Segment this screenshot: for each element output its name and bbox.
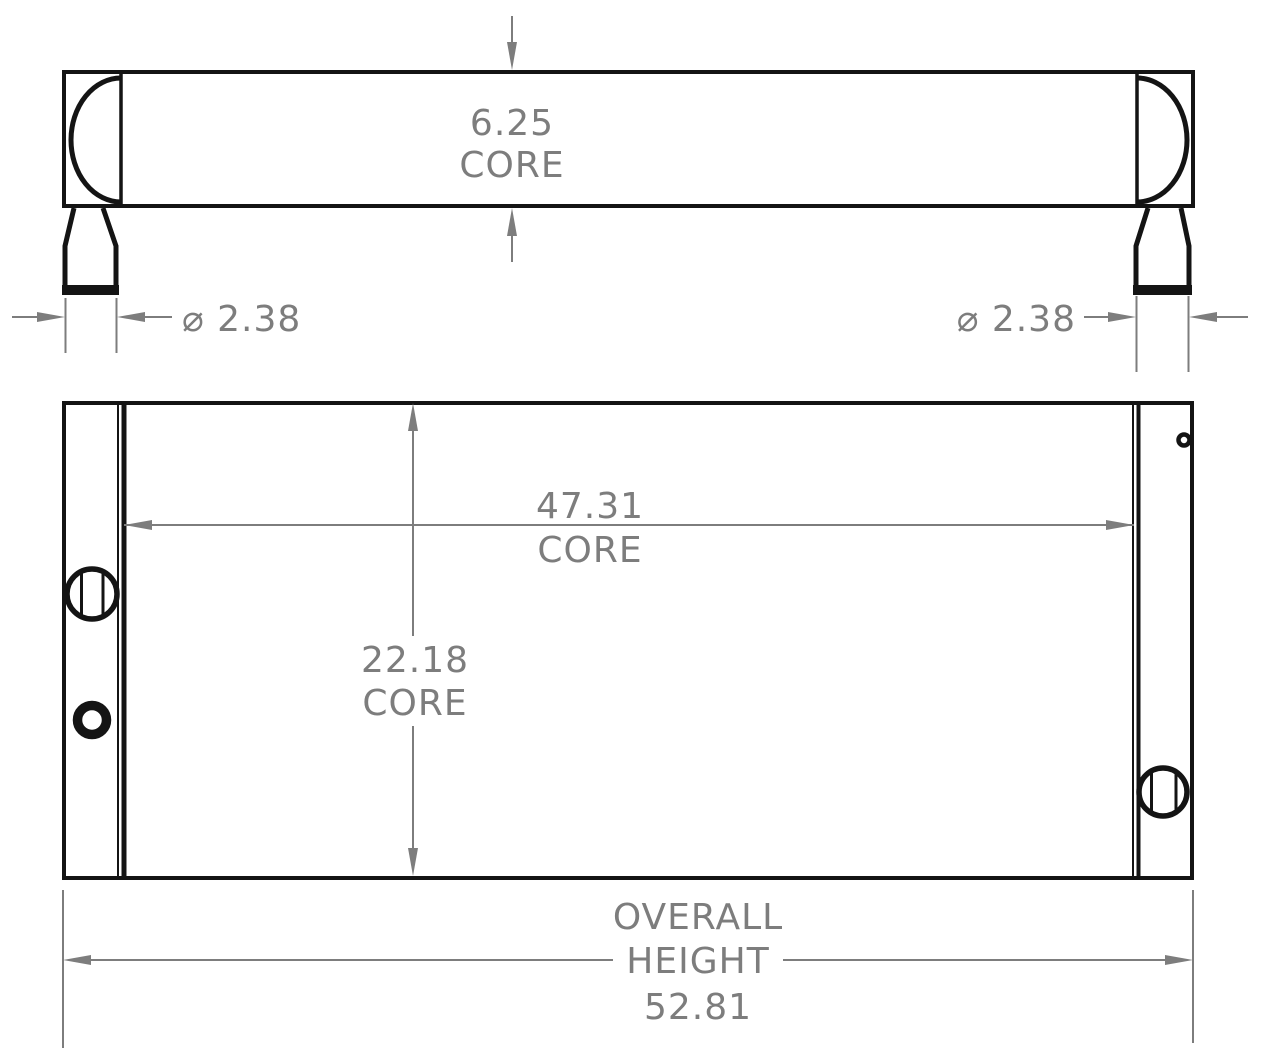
core-depth-label: CORE: [459, 145, 564, 186]
arrow-right-icon: [37, 312, 65, 322]
radiator-drawing: 6.25 CORE ⌀ 2.38 ⌀ 2.38: [0, 0, 1261, 1058]
overall-height-value: 52.81: [644, 987, 752, 1028]
port-left-diameter-value: ⌀ 2.38: [182, 299, 301, 340]
right-port-side: [1136, 208, 1148, 288]
top-view-outline: [64, 72, 1193, 206]
dimension-port-right: ⌀ 2.38: [957, 296, 1248, 372]
front-view: [64, 403, 1192, 878]
overall-height-label-line1: OVERALL: [613, 897, 783, 938]
drawing-canvas: 6.25 CORE ⌀ 2.38 ⌀ 2.38: [0, 0, 1261, 1058]
cap-circle: [67, 569, 117, 619]
arrow-left-icon: [117, 312, 145, 322]
arrow-down-icon: [507, 42, 517, 70]
dimension-core-depth: 6.25 CORE: [459, 16, 564, 262]
left-port-end: [62, 285, 119, 295]
right-port-end: [1133, 285, 1192, 295]
right-mount-hole: [1179, 435, 1190, 446]
arrow-left-icon: [124, 520, 152, 530]
dimension-port-left: ⌀ 2.38: [12, 298, 301, 353]
left-port: [62, 208, 119, 295]
overall-height-label-line2: HEIGHT: [626, 941, 769, 982]
cap-circle: [1139, 768, 1187, 816]
dimension-core-height: 22.18 CORE: [361, 403, 469, 876]
left-cap-fitting: [67, 569, 117, 619]
arrow-right-icon: [1165, 955, 1193, 965]
left-drain-ring: [78, 706, 107, 735]
arrow-right-icon: [1106, 520, 1134, 530]
left-port-side: [65, 208, 74, 288]
arrow-right-icon: [1108, 312, 1136, 322]
left-port-side: [103, 208, 116, 288]
arrow-up-icon: [408, 403, 418, 431]
core-width-value: 47.31: [536, 486, 644, 527]
core-height-value: 22.18: [361, 640, 469, 681]
right-cap-fitting: [1139, 768, 1187, 816]
core-height-label: CORE: [362, 683, 467, 724]
right-port-side: [1181, 208, 1189, 288]
port-right-diameter-value: ⌀ 2.38: [957, 299, 1076, 340]
core-width-label: CORE: [537, 530, 642, 571]
dimension-overall-height: OVERALL HEIGHT 52.81: [63, 890, 1193, 1048]
arrow-up-icon: [507, 208, 517, 236]
core-depth-value: 6.25: [470, 103, 554, 144]
right-end-cap-arc: [1137, 78, 1187, 202]
top-view: [62, 72, 1193, 295]
arrow-left-icon: [63, 955, 91, 965]
arrow-left-icon: [1189, 312, 1217, 322]
left-end-cap-arc: [71, 78, 121, 202]
front-view-outline: [64, 403, 1192, 878]
right-port: [1133, 208, 1192, 295]
arrow-down-icon: [408, 848, 418, 876]
dimension-core-width: 47.31 CORE: [124, 486, 1134, 571]
